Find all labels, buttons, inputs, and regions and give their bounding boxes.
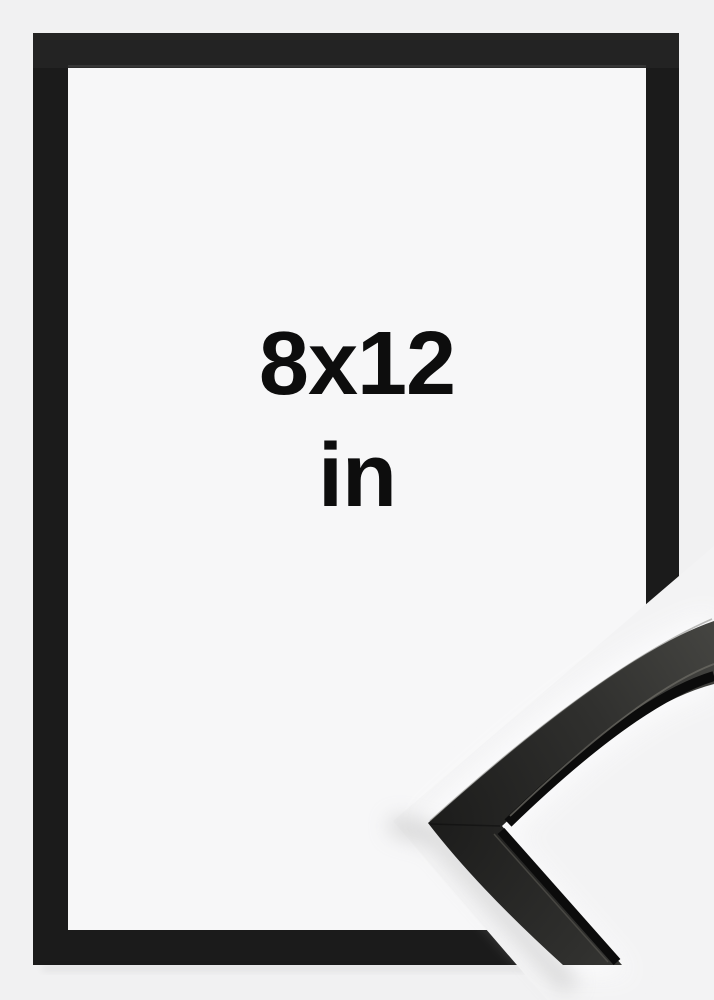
- product-image: 8x12 in: [0, 0, 714, 1000]
- size-label: 8x12 in: [0, 308, 714, 532]
- frame-inner-bevel: [68, 65, 646, 68]
- size-unit-text: in: [0, 420, 714, 532]
- frame-top-sheen: [33, 33, 679, 68]
- size-dimensions-text: 8x12: [0, 308, 714, 420]
